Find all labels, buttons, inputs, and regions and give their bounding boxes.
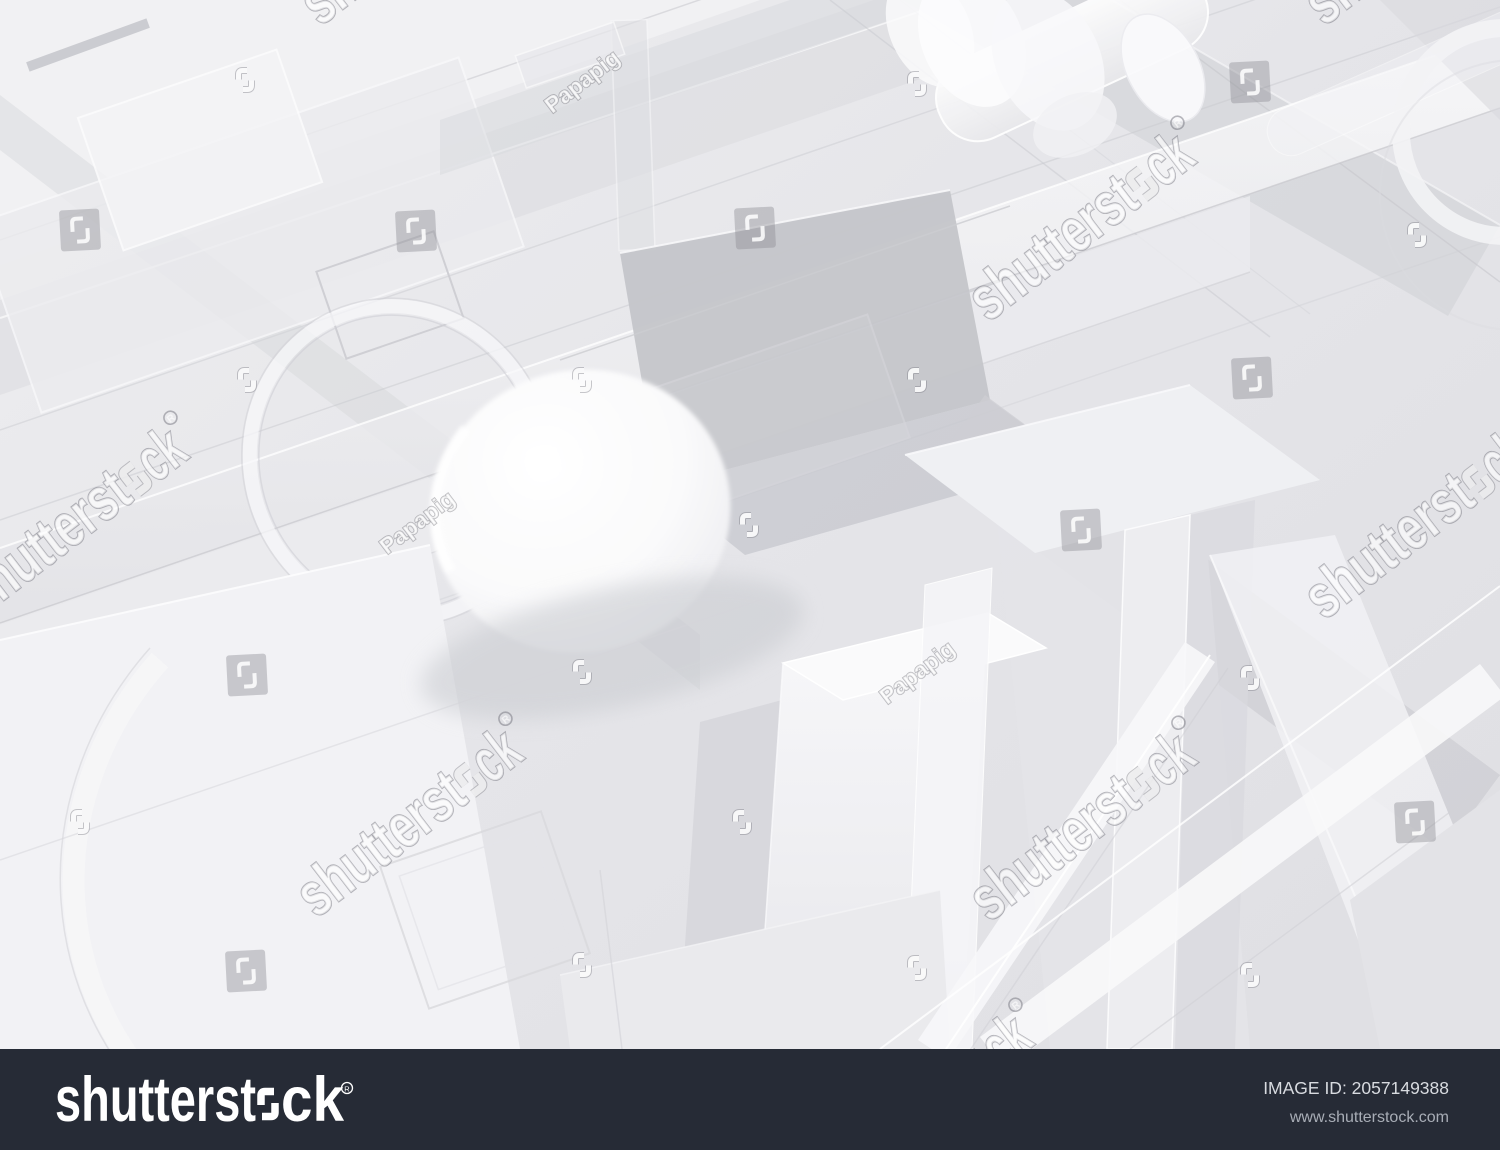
svg-text:ck: ck [281, 1065, 345, 1135]
svg-text:shutterst: shutterst [55, 1065, 256, 1135]
svg-text:R: R [344, 1085, 350, 1094]
svg-text:www.shutterstock.com: www.shutterstock.com [1289, 1109, 1449, 1126]
svg-text:IMAGE ID: 2057149388: IMAGE ID: 2057149388 [1263, 1078, 1449, 1098]
